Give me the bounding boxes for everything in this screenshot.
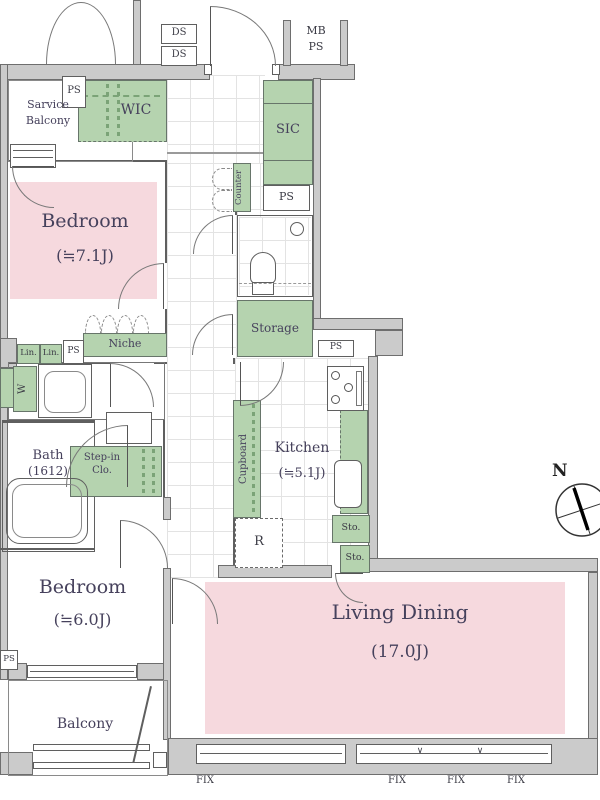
mb-ps-label-1: MB bbox=[294, 24, 338, 37]
niche-bifold-arc bbox=[101, 315, 117, 333]
toilet-hand-basin bbox=[290, 222, 304, 236]
window-glazing-line bbox=[360, 753, 548, 754]
wic-rod-line bbox=[82, 95, 160, 97]
linen-label-2: Lin. bbox=[40, 348, 62, 358]
wall bbox=[283, 20, 291, 66]
wall bbox=[368, 558, 598, 572]
hall-closet-bifold-arc bbox=[212, 190, 232, 212]
niche-bifold-arc bbox=[85, 315, 101, 333]
wall bbox=[588, 572, 598, 744]
stove-burner bbox=[331, 371, 340, 380]
fix-label-3: FIX bbox=[441, 775, 471, 787]
window-tick-2: ∨ bbox=[474, 746, 486, 757]
common-corridor-door-arc bbox=[46, 2, 116, 64]
ds-label-1: DS bbox=[161, 27, 197, 39]
sto-label-2: Sto. bbox=[340, 552, 370, 563]
linen-label-1: Lin. bbox=[17, 348, 40, 358]
stove-grill bbox=[356, 371, 362, 406]
step-in-hatch bbox=[142, 449, 145, 494]
service-balcony-label-1: Sarvice bbox=[8, 98, 88, 111]
balcony-railing-bar bbox=[33, 762, 150, 769]
fix-label-4: FIX bbox=[501, 775, 531, 787]
counter-label: Counter bbox=[234, 164, 250, 211]
service-balcony-window bbox=[10, 144, 56, 168]
niche-bifold-arc bbox=[117, 315, 133, 333]
sic-label: SIC bbox=[263, 122, 313, 138]
wall bbox=[0, 64, 210, 80]
niche-bifold-arc bbox=[133, 315, 149, 333]
service-balcony-label-2: Balcony bbox=[6, 114, 90, 127]
stove-burner bbox=[344, 383, 353, 392]
kitchen-size: (≒5.1J) bbox=[258, 466, 346, 482]
north-compass: N bbox=[538, 448, 600, 548]
entry-step-line bbox=[167, 152, 263, 154]
refrigerator-label: R bbox=[235, 534, 283, 550]
entrance-door-arc bbox=[210, 6, 276, 66]
bedroom-bottom-size: (≒6.0J) bbox=[20, 610, 145, 629]
bedroom-bottom-label: Bedroom bbox=[20, 576, 145, 599]
living-window-left bbox=[196, 744, 346, 764]
ps-label-bedroom: PS bbox=[0, 654, 18, 664]
north-label: N bbox=[552, 461, 568, 481]
window-glazing-line bbox=[13, 150, 53, 151]
bedroom-bottom-door-arc bbox=[120, 520, 168, 568]
hall-closet-bifold-arc bbox=[212, 168, 232, 190]
balcony-label: Balcony bbox=[40, 716, 130, 733]
partition-line bbox=[233, 358, 235, 364]
niche-label: Niche bbox=[83, 337, 167, 350]
window-glazing-line bbox=[200, 753, 342, 754]
wall bbox=[375, 330, 403, 356]
living-dining-label: Living Dining bbox=[300, 600, 500, 624]
kitchen-label: Kitchen bbox=[262, 440, 342, 457]
partition-line bbox=[165, 160, 167, 263]
balcony-partition-post bbox=[153, 752, 167, 768]
wic-label: WIC bbox=[108, 102, 164, 119]
floor-plan: Bedroom (≒7.1J) Bedroom (≒6.0J) Living D… bbox=[0, 0, 600, 800]
ps-label-storage: PS bbox=[318, 342, 354, 353]
mb-ps-label-2: PS bbox=[294, 40, 338, 53]
ps-label-washroom: PS bbox=[63, 346, 84, 357]
living-dining-size: (17.0J) bbox=[300, 642, 500, 662]
ps-label-wic: PS bbox=[62, 85, 86, 97]
toilet-clearance-line bbox=[239, 283, 311, 284]
wall bbox=[313, 78, 321, 327]
wall bbox=[340, 20, 348, 66]
sic-shelf-line bbox=[264, 103, 312, 104]
sto-label-1: Sto. bbox=[332, 522, 370, 533]
wall bbox=[313, 318, 403, 330]
bedroom-top-size: (≒7.1J) bbox=[20, 246, 150, 265]
step-in-closet-label-1: Step-in bbox=[70, 452, 134, 464]
sic-shelf-line bbox=[264, 160, 312, 161]
fix-label-1: FIX bbox=[190, 775, 220, 787]
window-glazing-line bbox=[13, 157, 53, 158]
step-in-hatch bbox=[152, 449, 155, 494]
left-fixture bbox=[0, 368, 14, 408]
window-tick-1: ∨ bbox=[414, 746, 426, 757]
toilet-bowl bbox=[250, 252, 276, 284]
cupboard-label: Cupboard bbox=[238, 424, 254, 494]
bathtub-inner bbox=[12, 484, 82, 538]
window-glazing-line bbox=[30, 671, 134, 672]
fix-label-2: FIX bbox=[382, 775, 412, 787]
ds-label-2: DS bbox=[161, 49, 197, 61]
wall bbox=[163, 497, 171, 520]
living-window-fix bbox=[356, 744, 552, 764]
balcony-railing-bar bbox=[33, 744, 150, 751]
partition-line bbox=[163, 420, 165, 497]
ps-label-counter: PS bbox=[263, 190, 310, 203]
storage-label: Storage bbox=[237, 321, 313, 335]
step-in-closet-label-2: Clo. bbox=[70, 465, 134, 477]
vanity-basin bbox=[44, 371, 86, 413]
washer-label: W bbox=[17, 372, 33, 406]
stove-burner bbox=[331, 395, 340, 404]
bedroom-top-label: Bedroom bbox=[20, 210, 150, 233]
